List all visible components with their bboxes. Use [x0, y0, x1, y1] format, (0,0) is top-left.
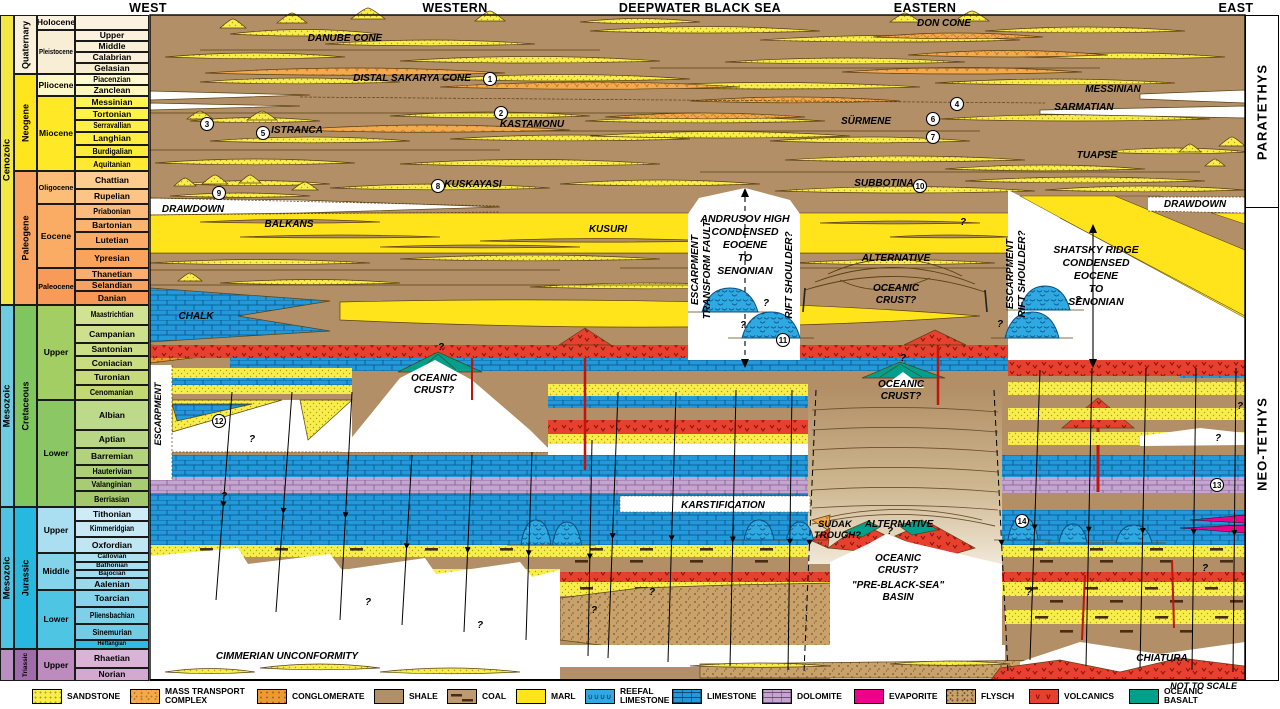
marker-number-11: 11: [779, 336, 788, 345]
panel-label-balkans: BALKANS: [265, 219, 314, 230]
stage-cell-bajocian: Bajocian: [75, 570, 149, 578]
coal-dash: [630, 560, 643, 563]
legend-swatch-oceanic-basalt: [1129, 689, 1159, 704]
stage-cell-middle: Middle: [75, 41, 149, 52]
stage-cell-toarcian: Toarcian: [75, 590, 149, 607]
legend-swatch-shale: [374, 689, 404, 704]
stage-cell-aquitanian: Aquitanian: [75, 157, 149, 171]
marker-number-4: 4: [955, 100, 960, 109]
question-mark: ?: [221, 491, 227, 502]
coal-dash: [1090, 548, 1103, 551]
stage-cell-bathonian: Bathonian: [75, 562, 149, 570]
marker-number-10: 10: [916, 182, 925, 191]
stage-cell-priabonian: Priabonian: [75, 204, 149, 219]
question-mark: ?: [887, 526, 893, 537]
marker-number-12: 12: [215, 417, 224, 426]
question-mark: ?: [1215, 433, 1221, 444]
stage-cell-sinemurian: Sinemurian: [75, 624, 149, 640]
epoch-cell-lower: Lower: [37, 590, 75, 649]
period-cell-jurassic: Jurassic: [14, 507, 37, 649]
panel-label-shatsky-ridge: SHATSKY RIDGE: [1053, 244, 1139, 256]
geo-band: [150, 545, 1245, 557]
question-mark: ?: [1237, 401, 1243, 412]
stage-cell-kimmeridgian: Kimmeridgian: [75, 521, 149, 537]
question-mark: ?: [438, 342, 444, 353]
legend-swatch-evaporite: [854, 689, 884, 704]
dolomite-band: [150, 477, 1245, 493]
coal-dash: [1100, 560, 1113, 563]
coal-dash: [1030, 548, 1043, 551]
legend-swatch-volcanics: v v: [1029, 689, 1059, 704]
stage-cell-albian: Albian: [75, 400, 149, 430]
stage-cell-messinian: Messinian: [75, 96, 149, 108]
coal-dash: [1205, 587, 1218, 590]
epoch-cell-middle: Middle: [37, 553, 75, 590]
coal-dash: [640, 548, 653, 551]
panel-label-karstification: KARSTIFICATION: [681, 500, 765, 511]
stage-cell-rhaetian: Rhaetian: [75, 649, 149, 668]
legend-label-reefal: REEFALLIMESTONE: [620, 687, 669, 706]
coal-dash: [1120, 630, 1133, 633]
legend-swatch-mtc: [130, 689, 160, 704]
coal-dash: [690, 560, 703, 563]
legend-swatch-conglomerate: [257, 689, 287, 704]
stage-cell-rupelian: Rupelian: [75, 189, 149, 204]
panel-label-crust: CRUST?: [876, 295, 917, 306]
legend-label-conglomerate: CONGLOMERATE: [292, 692, 365, 701]
coal-dash: [1230, 600, 1243, 603]
panel-label-transform-fault: TRANSFORM FAULT: [702, 220, 713, 319]
legend-swatch-flysch: [946, 689, 976, 704]
epoch-cell-eocene: Eocene: [37, 204, 75, 268]
geo-band: [1002, 493, 1245, 510]
geo-band: [548, 420, 808, 434]
geo-band: [1008, 360, 1245, 376]
panel-label-don-cone: DON CONE: [917, 18, 971, 29]
question-mark: ?: [1202, 563, 1208, 574]
coal-dash: [425, 548, 438, 551]
legend-label-evaporite: EVAPORITE: [889, 692, 938, 701]
panel-label-distal-sakarya-cone: DISTAL SAKARYA CONE: [353, 73, 471, 84]
neotethys-segment: NEO-TETHYS: [1246, 208, 1278, 679]
paratethys-label: PARATETHYS: [1255, 63, 1270, 159]
coal-dash: [1085, 587, 1098, 590]
epoch-cell-miocene: Miocene: [37, 96, 75, 171]
coal-dash: [350, 548, 363, 551]
stage-cell-berriasian: Berriasian: [75, 491, 149, 507]
geo-band: [548, 408, 808, 420]
marker-number-2: 2: [499, 109, 504, 118]
coal-dash: [1060, 630, 1073, 633]
coal-dash: [755, 560, 768, 563]
stage-cell-turonian: Turonian: [75, 370, 149, 385]
epoch-cell-oligocene: Oligocene: [37, 171, 75, 204]
question-mark: ?: [1075, 295, 1081, 306]
stage-cell-upper: Upper: [75, 30, 149, 41]
panel-label-istranca: ISTRANCA: [271, 125, 323, 136]
marker-number-13: 13: [1213, 481, 1222, 490]
period-cell-paleogene: Paleogene: [14, 171, 37, 305]
epoch-cell-upper: Upper: [37, 507, 75, 553]
coal-dash: [1145, 587, 1158, 590]
panel-label-cimmerian-unconformity: CIMMERIAN UNCONFORMITY: [216, 651, 360, 662]
era-cell-cenozoic: Cenozoic: [0, 15, 14, 305]
era-cell-mesozoic: Mesozoic: [0, 507, 14, 649]
stage-cell-ypresian: Ypresian: [75, 249, 149, 268]
marker-number-7: 7: [931, 133, 936, 142]
stage-cell-aalenian: Aalenian: [75, 578, 149, 590]
stage-cell-zanclean: Zanclean: [75, 85, 149, 96]
legend-label-mtc: MASS TRANSPORTCOMPLEX: [165, 687, 245, 706]
geo-shape: [560, 583, 835, 652]
stage-cell-coniacian: Coniacian: [75, 356, 149, 370]
neotethys-label: NEO-TETHYS: [1255, 397, 1270, 491]
legend-label-volcanics: VOLCANICS: [1064, 692, 1114, 701]
panel-label-crust: CRUST?: [881, 391, 922, 402]
stage-cell-campanian: Campanian: [75, 325, 149, 343]
stage-cell-danian: Danian: [75, 291, 149, 305]
panel-label-escarpment: ESCARPMENT: [153, 381, 163, 446]
marker-number-1: 1: [488, 75, 493, 84]
panel-label-danube-cone: DANUBE CONE: [308, 33, 383, 44]
panel-label-sarmatian: SARMATIAN: [1054, 102, 1114, 113]
geo-band: [172, 394, 352, 400]
panel-label-escarpment: ESCARPMENT: [690, 234, 701, 305]
lithology-legend: SANDSTONEMASS TRANSPORTCOMPLEXCONGLOMERA…: [0, 681, 1280, 709]
coal-dash: [1155, 616, 1168, 619]
legend-label-shale: SHALE: [409, 692, 438, 701]
marker-number-5: 5: [261, 129, 266, 138]
epoch-cell-upper: Upper: [37, 305, 75, 400]
coal-dash: [275, 548, 288, 551]
epoch-cell-pliocene: Pliocene: [37, 74, 75, 96]
question-mark: ?: [997, 319, 1003, 330]
panel-label-to: TO: [1089, 283, 1103, 295]
coal-dash: [1110, 600, 1123, 603]
stage-cell-gelasian: Gelasian: [75, 63, 149, 74]
stage-cell-chattian: Chattian: [75, 171, 149, 189]
legend-label-marl: MARL: [551, 692, 576, 701]
legend-label-coal: COAL: [482, 692, 506, 701]
stage-cell-barremian: Barremian: [75, 448, 149, 465]
stage-cell-tortonian: Tortonian: [75, 108, 149, 120]
legend-label-dolomite: DOLOMITE: [797, 692, 842, 701]
panel-label-drawdown: DRAWDOWN: [162, 204, 225, 215]
epoch-cell-upper: Upper: [37, 649, 75, 681]
panel-label-kuskayasi: KUSKAYASI: [444, 179, 502, 190]
geo-band: [1008, 408, 1245, 420]
stage-cell-hauterivian: Hauterivian: [75, 465, 149, 478]
panel-label-alternative: ALTERNATIVE: [861, 253, 931, 264]
stage-cell-santonian: Santonian: [75, 343, 149, 356]
stage-cell-langhian: Langhian: [75, 132, 149, 145]
marker-number-9: 9: [217, 189, 222, 198]
legend-label-limestone: LIMESTONE: [707, 692, 756, 701]
question-mark: ?: [763, 298, 769, 309]
legend-swatch-limestone: [672, 689, 702, 704]
panel-label-rift-shoulder: RIFT SHOULDER?: [1017, 230, 1028, 317]
chronostratigraphic-column: CenozoicMesozoicMesozoicQuaternaryNeogen…: [0, 0, 149, 709]
panel-label-trough: TROUGH?: [814, 530, 861, 541]
coal-dash: [500, 548, 513, 551]
question-mark: ?: [960, 217, 966, 228]
panel-label-oceanic: OCEANIC: [873, 283, 920, 294]
panel-label-pre-black-sea: "PRE-BLACK-SEA": [852, 580, 945, 591]
coal-dash: [700, 548, 713, 551]
period-cell-quaternary: Quaternary: [14, 15, 37, 74]
panel-label-escarpment: ESCARPMENT: [1005, 238, 1016, 309]
coal-dash: [590, 548, 603, 551]
question-mark: ?: [900, 353, 906, 364]
period-cell-triassic: Triassic: [14, 649, 37, 681]
question-mark: ?: [365, 597, 371, 608]
question-mark: ?: [591, 605, 597, 616]
stage-cell-maastrichtian: Maastrichtian: [75, 305, 149, 325]
stage-cell-piacenzian: Piacenzian: [75, 74, 149, 85]
epoch-cell-lower: Lower: [37, 400, 75, 507]
coal-dash: [760, 548, 773, 551]
period-cell-neogene: Neogene: [14, 74, 37, 171]
coal-dash: [1040, 560, 1053, 563]
coal-dash: [580, 587, 593, 590]
stage-cell-thanetian: Thanetian: [75, 268, 149, 280]
geo-band: [1005, 596, 1245, 610]
coal-dash: [1180, 630, 1193, 633]
era-cell-blank: [0, 649, 14, 681]
stage-cell-selandian: Selandian: [75, 280, 149, 291]
stage-cell-oxfordian: Oxfordian: [75, 537, 149, 553]
panel-label-chalk: CHALK: [179, 311, 215, 322]
panel-label-condensed: CONDENSED: [1062, 257, 1130, 269]
period-cell-cretaceous: Cretaceous: [14, 305, 37, 507]
question-mark: ?: [649, 587, 655, 598]
geo-band: [172, 368, 352, 378]
panel-label-kastamonu: KASTAMONU: [500, 119, 565, 130]
panel-label-crust: CRUST?: [414, 385, 455, 396]
coal-dash: [1215, 616, 1228, 619]
marker-number-3: 3: [205, 120, 210, 129]
legend-swatch-reefal: ∪∪∪∪: [585, 689, 615, 704]
tethys-strip: PARATETHYS NEO-TETHYS: [1245, 15, 1279, 681]
legend-swatch-sandstone: [32, 689, 62, 704]
legend-swatch-marl: [516, 689, 546, 704]
panel-label-sudak: SUDAK: [818, 519, 853, 530]
black-sea-stratigraphic-chart: WEST WESTERN DEEPWATER BLACK SEA EASTERN…: [0, 0, 1280, 709]
stage-cell-tithonian: Tithonian: [75, 507, 149, 521]
epoch-cell-paleocene: Paleocene: [37, 268, 75, 305]
geo-band: [172, 378, 352, 385]
stage-cell-aptian: Aptian: [75, 430, 149, 448]
panel-label-s-rmene: SÜRMENE: [841, 114, 891, 127]
marker-number-6: 6: [931, 115, 936, 124]
coal-dash: [1150, 548, 1163, 551]
panel-label-basin: BASIN: [882, 592, 914, 603]
marker-number-14: 14: [1018, 517, 1027, 526]
panel-label-senonian: SENONIAN: [717, 265, 773, 277]
stage-cell-blank: [75, 15, 149, 30]
geo-band: [548, 434, 808, 444]
stage-cell-serravallian: Serravallian: [75, 120, 149, 132]
cross-section-panel: DANUBE CONEDON CONEDISTAL SAKARYA CONEME…: [0, 0, 1280, 709]
stage-cell-cenomanian: Cenomanian: [75, 385, 149, 400]
question-mark: ?: [1026, 587, 1032, 598]
stage-cell-bartonian: Bartonian: [75, 219, 149, 232]
question-mark: ?: [249, 434, 255, 445]
panel-label-oceanic: OCEANIC: [875, 553, 922, 564]
stage-cell-calabrian: Calabrian: [75, 52, 149, 63]
geo-band: [548, 444, 808, 455]
geo-band: [1008, 382, 1245, 395]
panel-label-to: TO: [738, 252, 752, 264]
geo-shape: [351, 8, 385, 19]
legend-swatch-coal: [447, 689, 477, 704]
limestone-band: [150, 455, 1245, 477]
epoch-cell-holocene: Holocene: [37, 15, 75, 30]
panel-label-oceanic: OCEANIC: [411, 373, 458, 384]
panel-label-crust: CRUST?: [878, 565, 919, 576]
not-to-scale-note: NOT TO SCALE: [1117, 681, 1237, 691]
stage-cell-norian: Norian: [75, 668, 149, 681]
epoch-cell-pleistocene: Pleistocene: [37, 30, 75, 74]
stage-cell-hettangian: Hettangian: [75, 640, 149, 649]
stage-cell-burdigalian: Burdigalian: [75, 145, 149, 157]
geo-band: [548, 396, 808, 408]
panel-label-subbotina: SUBBOTINA: [854, 178, 913, 189]
coal-dash: [200, 548, 213, 551]
legend-label-sandstone: SANDSTONE: [67, 692, 120, 701]
coal-dash: [1170, 600, 1183, 603]
panel-label-alternative: ALTERNATIVE: [864, 519, 934, 530]
panel-label-eocene: EOCENE: [723, 239, 768, 251]
coal-dash: [1035, 616, 1048, 619]
coal-dash: [1095, 616, 1108, 619]
stage-cell-lutetian: Lutetian: [75, 232, 149, 249]
question-mark: ?: [740, 320, 746, 331]
era-cell-mesozoic: Mesozoic: [0, 305, 14, 507]
geo-band: [172, 385, 352, 394]
panel-label-eocene: EOCENE: [1074, 270, 1119, 282]
panel-label-chiatura: CHIATURA: [1136, 653, 1187, 664]
panel-label-condensed: CONDENSED: [711, 226, 779, 238]
question-mark: ?: [477, 620, 483, 631]
panel-label-kusuri: KUSURI: [589, 224, 628, 235]
panel-label-tuapse: TUAPSE: [1077, 150, 1118, 161]
panel-label-drawdown: DRAWDOWN: [1164, 199, 1227, 210]
legend-label-flysch: FLYSCH: [981, 692, 1014, 701]
coal-dash: [575, 560, 588, 563]
geo-band: [548, 384, 808, 396]
panel-label-oceanic: OCEANIC: [878, 379, 925, 390]
coal-dash: [1210, 548, 1223, 551]
coal-dash: [1050, 600, 1063, 603]
stage-cell-valanginian: Valanginian: [75, 478, 149, 491]
paratethys-segment: PARATETHYS: [1246, 16, 1278, 208]
coal-dash: [1220, 560, 1233, 563]
marker-number-8: 8: [436, 182, 441, 191]
stage-cell-pliensbachian: Pliensbachian: [75, 607, 149, 624]
panel-label-rift-shoulder: RIFT SHOULDER?: [784, 231, 795, 318]
panel-label-messinian: MESSINIAN: [1085, 84, 1141, 95]
stage-cell-callovian: Callovian: [75, 553, 149, 562]
legend-swatch-dolomite: [762, 689, 792, 704]
